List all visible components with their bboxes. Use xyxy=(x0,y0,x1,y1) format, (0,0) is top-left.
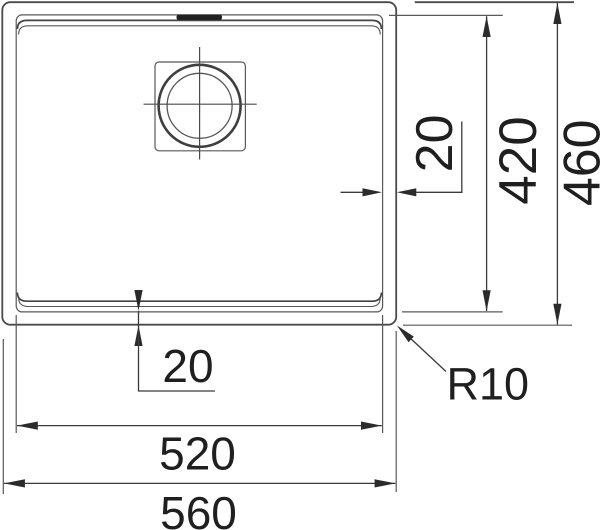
svg-text:560: 560 xyxy=(160,487,237,530)
svg-text:520: 520 xyxy=(159,428,236,480)
svg-text:420: 420 xyxy=(489,116,548,204)
svg-text:R10: R10 xyxy=(447,359,530,410)
svg-text:20: 20 xyxy=(406,114,464,172)
svg-text:460: 460 xyxy=(554,119,600,206)
svg-text:20: 20 xyxy=(162,340,213,392)
